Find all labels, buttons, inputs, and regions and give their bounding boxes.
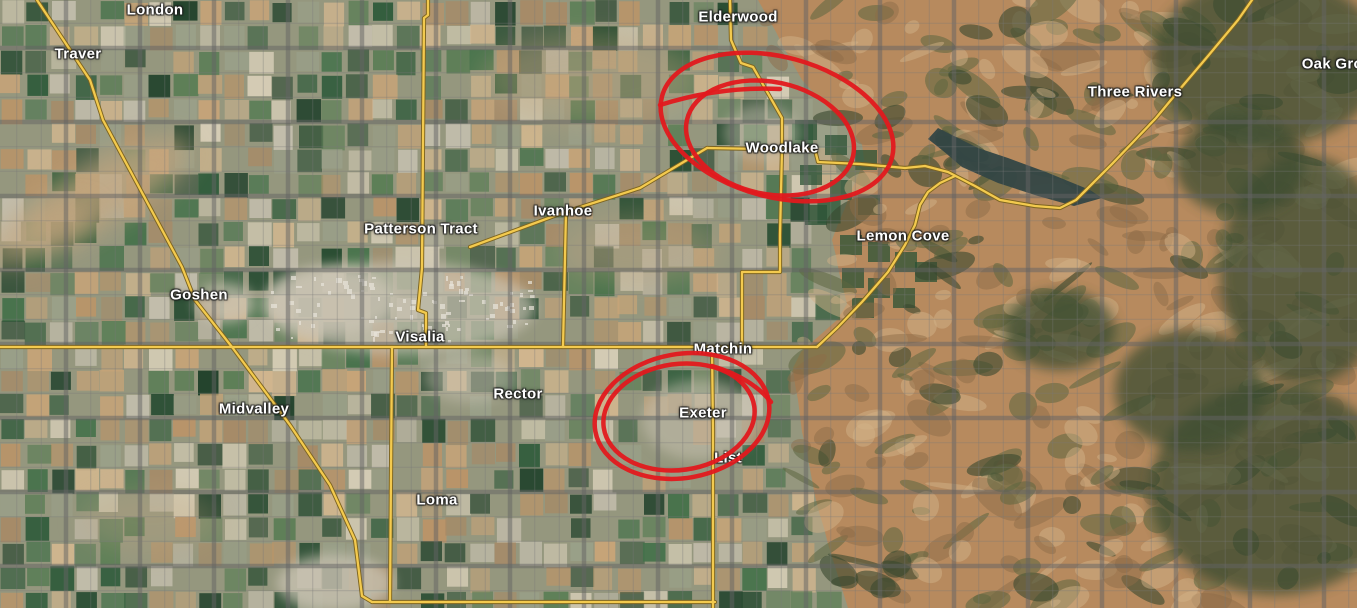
map-label-elderwood[interactable]: Elderwood (698, 9, 777, 26)
map-label-london[interactable]: London (127, 2, 184, 19)
map-label-patterson-tract[interactable]: Patterson Tract (364, 221, 478, 238)
map-label-oak-grove[interactable]: Oak Grove (1302, 56, 1357, 73)
map-label-exeter[interactable]: Exeter (679, 405, 727, 422)
map-label-goshen[interactable]: Goshen (170, 287, 228, 304)
map-label-matchin[interactable]: Matchin (694, 341, 753, 358)
map-label-visalia[interactable]: Visalia (395, 329, 444, 346)
satellite-map[interactable]: LondonTraverElderwoodOak GroveThree Rive… (0, 0, 1357, 608)
map-label-rector[interactable]: Rector (493, 386, 542, 403)
map-label-lemon-cove[interactable]: Lemon Cove (856, 228, 949, 245)
map-label-ivanhoe[interactable]: Ivanhoe (534, 203, 593, 220)
map-label-list[interactable]: List (714, 450, 742, 467)
map-label-traver[interactable]: Traver (55, 46, 102, 63)
map-label-midvalley[interactable]: Midvalley (219, 401, 289, 418)
map-label-three-rivers[interactable]: Three Rivers (1088, 84, 1182, 101)
map-label-loma[interactable]: Loma (416, 492, 457, 509)
map-label-woodlake[interactable]: Woodlake (746, 140, 819, 157)
